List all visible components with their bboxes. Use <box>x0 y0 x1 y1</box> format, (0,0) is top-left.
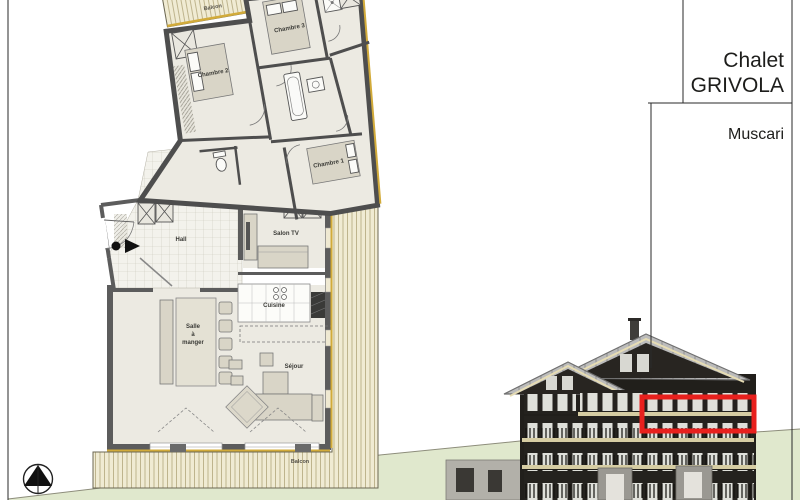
plan-drawing: Balcon <box>0 0 800 500</box>
architectural-sheet: Balcon <box>0 0 800 500</box>
salle-a-manger-label-3: manger <box>182 340 204 346</box>
wall-pier <box>295 444 311 452</box>
hall-label: Hall <box>175 237 186 243</box>
salle-a-manger-label-1: Salle <box>186 324 201 330</box>
salon-tv-label: Salon TV <box>273 231 299 237</box>
chalet-name: GRIVOLA <box>691 74 784 97</box>
sejour-label: Séjour <box>285 364 304 370</box>
wall-pier <box>170 444 186 452</box>
title-block: Chalet GRIVOLA Muscari <box>691 49 785 143</box>
washbasin <box>307 77 325 93</box>
window-row <box>580 390 750 414</box>
cuisine-label: Cuisine <box>263 303 285 309</box>
north-compass-icon <box>24 465 53 494</box>
chimney <box>630 320 639 340</box>
chalet-title: Chalet <box>723 49 784 72</box>
balcony-bottom-label: Balcon <box>291 459 310 465</box>
unit-name: Muscari <box>728 126 784 143</box>
building-elevation <box>446 318 756 500</box>
